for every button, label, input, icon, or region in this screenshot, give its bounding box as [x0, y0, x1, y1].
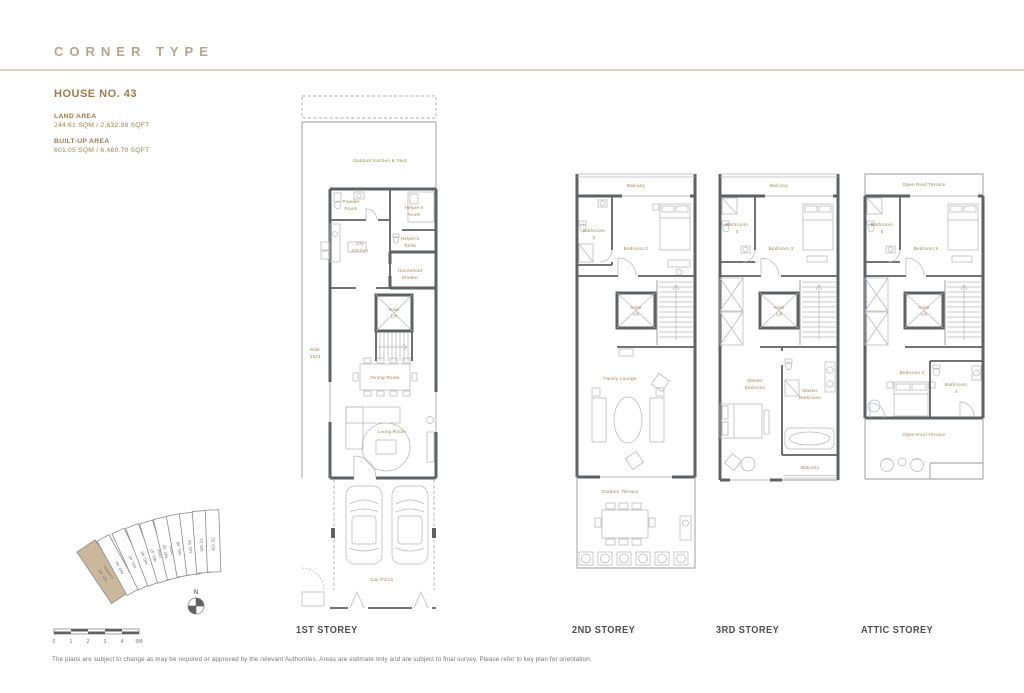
room-label-balcony: Balcony: [627, 183, 646, 188]
caption-2nd-storey: 2ND STOREY: [572, 625, 635, 636]
room-label-home-lift-2: Lift: [921, 312, 927, 317]
brochure-page: CORNER TYPE HOUSE NO. 43 LAND AREA 244.6…: [0, 0, 1024, 693]
room-label-open-roof-terrace-rear: Open Roof Terrace: [903, 432, 946, 437]
room-label-bedroom4: Bedroom 4: [900, 370, 925, 375]
yard-boundary: [302, 122, 436, 478]
floor-plan-attic-storey: Open Roof Terrace Bathroom 5 Bedroom 5: [860, 166, 988, 488]
caption-3rd-storey: 3RD STOREY: [716, 625, 779, 636]
caption-1st-storey: 1ST STOREY: [296, 625, 358, 636]
room-label-bathroom2-2: 2: [593, 235, 596, 240]
room-label-helpers-room-2: Room: [407, 212, 420, 217]
room-label-master-bathroom-1: Master: [802, 388, 818, 393]
home-lift-cross: [760, 293, 798, 328]
balcony-railing: [720, 174, 838, 177]
room-label-car-porch: Car Porch: [371, 577, 394, 582]
side-yard-appliances: [321, 242, 329, 259]
room-label-home-lift-1: Home: [919, 305, 931, 310]
disclaimer-text: The plans are subject to change as may b…: [52, 656, 992, 663]
room-label-side-yard-1: Side: [310, 347, 320, 352]
lot-number: NO. 52: [210, 537, 215, 551]
home-lift-cross: [617, 293, 655, 328]
wardrobe: [720, 278, 743, 345]
room-label-master-bedroom-2: Bedroom: [745, 385, 765, 390]
floor-plan-2nd-storey: Balcony Bathroom 2 Bedroom 2 Home Lift: [572, 166, 700, 602]
room-label-family-lounge: Family Lounge: [603, 376, 637, 381]
living-furniture: [346, 407, 434, 471]
land-area-label: LAND AREA: [54, 113, 96, 120]
car-1: [346, 486, 382, 564]
car-porch-boundary: [334, 480, 434, 590]
room-label-outdoor-kitchen-yard: Outdoor Kitchen & Yard: [353, 158, 407, 163]
room-label-bathroom4-1: Bathroom: [945, 382, 967, 387]
room-label-bathroom5-2: 5: [881, 229, 884, 234]
room-label-home-lift-2: Lift: [633, 312, 639, 317]
room-label-helpers-toilet-2: Toilet: [404, 243, 417, 248]
room-label-powder-2: Room: [344, 206, 357, 211]
scale-tick-0: 0: [53, 639, 56, 645]
cabinet: [619, 349, 633, 356]
staircase: [376, 331, 412, 361]
room-label-living: Living Room: [378, 429, 406, 434]
north-label: N: [194, 590, 198, 596]
floor-plan-3rd-storey: Balcony Bathroom 3 Bedroom 3 Home: [715, 166, 843, 488]
room-label-side-yard-2: Yard: [310, 354, 321, 359]
room-label-home-lift-1: Home: [631, 305, 643, 310]
balcony-railing: [577, 174, 695, 177]
helpers-toilet-fixtures: [393, 234, 399, 243]
master-bathroom-fixtures: [785, 359, 835, 449]
bedroom2-bed: [653, 204, 690, 275]
gate-markers: [350, 592, 428, 608]
room-label-powder-1: Powder: [342, 199, 359, 204]
window-lines: [600, 196, 690, 477]
room-label-outdoor-terrace: Outdoor Terrace: [602, 489, 639, 494]
scale-tick-4: 4: [121, 639, 124, 645]
door-swing-2: [618, 258, 636, 276]
wardrobe: [865, 278, 888, 345]
room-label-home-lift-2: Lift: [776, 312, 782, 317]
room-label-rear-balcony: Balcony: [801, 465, 820, 470]
compass-quadrant-ne: [196, 598, 204, 606]
scale-tick-5: 5M: [135, 639, 142, 645]
room-label-bathroom3-2: 3: [736, 229, 739, 234]
scale-tick-1: 1: [70, 639, 73, 645]
compass-quadrant-sw: [188, 606, 196, 614]
north-compass: N: [183, 586, 211, 620]
porch-post-left: [331, 528, 335, 538]
room-label-home-lift-2: Lift: [391, 314, 397, 319]
staircase: [800, 280, 836, 345]
terrace-dining-set: [595, 503, 691, 545]
room-label-open-roof-terrace: Open Roof Terrace: [903, 182, 946, 187]
side-gate-swing: [302, 568, 324, 590]
terrace-chairs: [881, 458, 924, 472]
scale-tick-3: 3: [104, 639, 107, 645]
bedroom3-bed: [803, 204, 833, 262]
door-swing-2: [761, 258, 779, 276]
room-label-home-lift-1: Home: [389, 307, 401, 312]
room-label-balcony: Balcony: [770, 183, 789, 188]
bedroom5-bed: [948, 204, 978, 262]
bedroom4-bed: [868, 382, 935, 416]
room-label-home-lift-1: Home: [774, 305, 786, 310]
window-gaps: [600, 196, 690, 477]
room-label-bedroom3: Bedroom 3: [769, 246, 794, 251]
home-lift-cross: [905, 293, 943, 328]
page-title: CORNER TYPE: [54, 44, 214, 59]
room-label-helpers-room-1: Helper's: [405, 205, 424, 210]
room-label-shelter-2: Shelter: [402, 275, 418, 280]
room-label-bedroom5: Bedroom 5: [914, 246, 939, 251]
lot-52: NO. 52: [205, 510, 221, 572]
roof-overhang-outline: [302, 96, 436, 118]
land-area-value: 244.61 SQM / 2,632.98 SQFT: [54, 122, 150, 129]
room-label-bedroom2: Bedroom 2: [624, 246, 649, 251]
room-label-bathroom5-1: Bathroom: [871, 222, 893, 227]
lounge-furniture: [592, 373, 670, 469]
staircase: [657, 280, 693, 345]
bin-point: [302, 592, 324, 606]
porch-post-right: [432, 528, 436, 538]
staircase: [945, 280, 981, 345]
room-label-bathroom3-1: Bathroom: [726, 222, 748, 227]
door-swing: [600, 250, 612, 262]
scale-tick-2: 2: [87, 639, 90, 645]
master-bed: [720, 404, 769, 471]
floor-plan-1st-storey: Outdoor Kitchen & Yard Powder Room Helpe…: [296, 92, 440, 624]
scale-bar: 0 1 2 3 4 5M: [52, 626, 152, 650]
rear-balcony-railing: [784, 476, 836, 479]
header-rule: [0, 69, 1024, 71]
room-label-dining: Dining Room: [370, 375, 399, 380]
planter-boxes: [579, 552, 688, 565]
caption-attic-storey: ATTIC STOREY: [861, 625, 933, 636]
house-number: HOUSE NO. 43: [54, 88, 137, 100]
door-swing-2: [906, 258, 924, 276]
car-2: [392, 486, 428, 564]
room-label-shelter-1: Household: [398, 268, 422, 273]
room-label-helpers-toilet-1: Helper's: [401, 236, 420, 241]
room-label-bathroom2-1: Bathroom: [583, 228, 605, 233]
room-label-master-bedroom-1: Master: [747, 378, 763, 383]
room-label-bathroom4-2: 4: [955, 389, 958, 394]
lot-number: NO. 51: [198, 537, 204, 551]
built-up-area-value: 601.05 SQM / 6,469.70 SQFT: [54, 147, 150, 154]
built-up-area-label: BUILT-UP AREA: [54, 138, 110, 145]
room-label-master-bathroom-2: Bathroom: [799, 395, 821, 400]
door-swing: [366, 209, 377, 220]
scale-bar-segments: [54, 629, 139, 634]
